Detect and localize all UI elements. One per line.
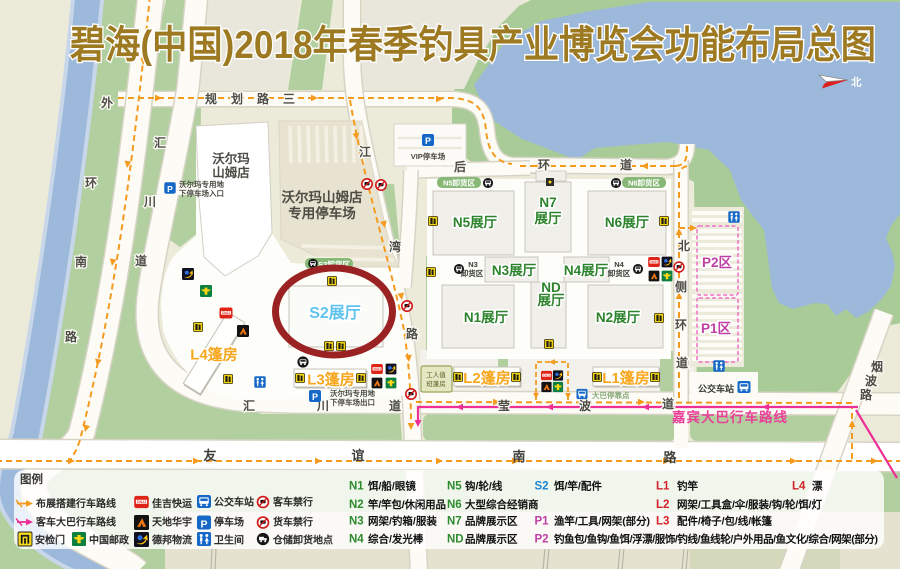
svg-text:嘉宾大巴行车路线: 嘉宾大巴行车路线 [671, 409, 788, 425]
svg-text:N1展厅: N1展厅 [464, 310, 509, 325]
svg-text:划: 划 [231, 91, 243, 106]
svg-text:N6: N6 [447, 499, 462, 511]
svg-text:大巴停靠点: 大巴停靠点 [592, 390, 630, 400]
svg-text:路: 路 [257, 91, 270, 106]
svg-text:碧海(中国)2018年春季钓具产业博览会功能布局总图: 碧海(中国)2018年春季钓具产业博览会功能布局总图 [70, 24, 876, 67]
svg-text:L2篷房: L2篷房 [463, 369, 511, 387]
svg-text:L3篷房: L3篷房 [307, 371, 355, 389]
svg-text:图例: 图例 [20, 472, 43, 486]
svg-text:展厅: 展厅 [538, 293, 566, 308]
svg-text:品牌展示区: 品牌展示区 [465, 515, 518, 528]
svg-text:山姆店: 山姆店 [212, 165, 250, 180]
svg-text:饵/船/眼镜: 饵/船/眼镜 [367, 480, 416, 493]
svg-text:北: 北 [678, 238, 690, 253]
svg-text:综合/发光棒: 综合/发光棒 [368, 533, 424, 546]
svg-text:货车禁行: 货车禁行 [273, 516, 313, 529]
svg-text:公交车站: 公交车站 [214, 496, 254, 509]
svg-text:湾: 湾 [389, 239, 401, 254]
svg-text:安检门: 安检门 [35, 534, 65, 547]
svg-text:N4展厅: N4展厅 [564, 263, 609, 278]
svg-text:友: 友 [203, 448, 216, 463]
svg-text:南: 南 [512, 449, 525, 464]
svg-text:饵/竿/配件: 饵/竿/配件 [553, 480, 602, 493]
svg-text:道: 道 [676, 355, 688, 370]
svg-text:专用停车场: 专用停车场 [288, 205, 356, 221]
svg-text:路: 路 [65, 329, 78, 344]
svg-text:江: 江 [359, 144, 371, 159]
svg-text:钩/轮/线: 钩/轮/线 [465, 480, 503, 493]
svg-text:N4: N4 [614, 260, 624, 269]
svg-text:路: 路 [406, 326, 419, 341]
svg-text:N3: N3 [349, 516, 364, 528]
svg-text:L1: L1 [656, 481, 670, 493]
svg-text:沃尔玛山姆店: 沃尔玛山姆店 [282, 189, 363, 205]
svg-text:N5展厅: N5展厅 [453, 215, 498, 230]
svg-text:北: 北 [851, 76, 862, 89]
svg-text:N3: N3 [468, 260, 478, 269]
svg-text:网架/钓箱/服装: 网架/钓箱/服装 [368, 515, 437, 528]
svg-text:展厅: 展厅 [535, 211, 563, 226]
svg-text:P2区: P2区 [702, 255, 733, 270]
svg-text:下停车场出口: 下停车场出口 [330, 397, 375, 407]
svg-text:川: 川 [143, 195, 156, 209]
svg-text:佳吉快运: 佳吉快运 [152, 497, 192, 510]
svg-text:谊: 谊 [351, 448, 364, 463]
svg-text:N6卸货区: N6卸货区 [628, 178, 661, 188]
svg-text:波: 波 [865, 373, 878, 388]
svg-text:L4篷房: L4篷房 [190, 346, 238, 364]
svg-text:道: 道 [389, 398, 401, 413]
svg-text:客车禁行: 客车禁行 [272, 496, 313, 509]
svg-text:漂: 漂 [812, 480, 823, 493]
svg-text:N5卸货区: N5卸货区 [443, 178, 476, 188]
svg-text:N6展厅: N6展厅 [605, 215, 650, 230]
svg-text:汇: 汇 [154, 136, 166, 150]
svg-text:环: 环 [85, 176, 97, 190]
svg-text:道: 道 [135, 253, 147, 268]
svg-text:班蓬房: 班蓬房 [426, 379, 446, 388]
svg-text:钓竿: 钓竿 [677, 480, 698, 493]
svg-text:停车场: 停车场 [214, 516, 244, 529]
svg-text:钓鱼包/鱼钩/鱼饵/浮漂/服饰/钓线/鱼线轮/户外用品/鱼文: 钓鱼包/鱼钩/鱼饵/浮漂/服饰/钓线/鱼线轮/户外用品/鱼文化/综合/网架(部分… [554, 533, 878, 546]
svg-text:大型综合经销商: 大型综合经销商 [465, 498, 539, 511]
svg-text:L3: L3 [656, 516, 669, 528]
svg-text:网架/工具盒/伞/服装/钩/轮/饵/灯: 网架/工具盒/伞/服装/钩/轮/饵/灯 [677, 498, 823, 511]
svg-text:卫生间: 卫生间 [214, 534, 244, 547]
svg-text:L2: L2 [656, 499, 669, 511]
svg-text:N3展厅: N3展厅 [492, 263, 537, 278]
svg-text:卸货区: 卸货区 [608, 268, 631, 278]
svg-text:卸货区: 卸货区 [461, 268, 484, 278]
svg-text:天地华宇: 天地华宇 [152, 516, 192, 529]
svg-text:N7: N7 [539, 195, 556, 210]
svg-text:ND: ND [447, 534, 464, 546]
svg-text:S2展厅: S2展厅 [309, 304, 361, 322]
svg-text:后: 后 [454, 159, 466, 174]
svg-text:N4: N4 [349, 534, 364, 546]
svg-text:汇: 汇 [243, 399, 255, 413]
svg-text:L4: L4 [792, 481, 806, 493]
svg-text:P2: P2 [535, 534, 549, 546]
svg-text:下停车场入口: 下停车场入口 [179, 188, 224, 198]
svg-text:配件/椅子/包/线/帐篷: 配件/椅子/包/线/帐篷 [677, 515, 773, 528]
svg-text:品牌展示区: 品牌展示区 [465, 533, 518, 546]
svg-text:P1区: P1区 [701, 321, 732, 336]
svg-text:烟: 烟 [871, 360, 883, 374]
svg-text:工人值: 工人值 [426, 370, 446, 379]
svg-text:L1篷房: L1篷房 [602, 369, 650, 387]
svg-text:环: 环 [538, 158, 550, 172]
svg-text:波: 波 [579, 398, 592, 413]
svg-text:仓储卸货地点: 仓储卸货地点 [272, 534, 333, 547]
svg-text:中国邮政: 中国邮政 [89, 534, 130, 547]
svg-text:VIP停车场: VIP停车场 [411, 151, 446, 161]
svg-text:渔竿/工具/网架(部分): 渔竿/工具/网架(部分) [554, 515, 650, 528]
svg-text:N7: N7 [447, 516, 462, 528]
svg-text:沃尔玛专用地: 沃尔玛专用地 [330, 388, 375, 398]
svg-text:沃尔玛: 沃尔玛 [212, 151, 250, 166]
svg-text:莹: 莹 [498, 398, 510, 413]
svg-text:南: 南 [75, 254, 87, 269]
svg-text:竿/竿包/休闲用品: 竿/竿包/休闲用品 [368, 498, 446, 511]
svg-text:客车大巴行车路线: 客车大巴行车路线 [35, 516, 116, 529]
svg-text:N1: N1 [349, 481, 364, 493]
svg-text:P1: P1 [535, 516, 550, 528]
svg-text:侧: 侧 [675, 279, 687, 294]
svg-text:N2展厅: N2展厅 [596, 310, 641, 325]
svg-text:沃尔玛专用地: 沃尔玛专用地 [179, 179, 224, 189]
svg-text:道: 道 [662, 396, 674, 411]
svg-text:N5: N5 [447, 481, 462, 493]
svg-text:三: 三 [283, 92, 295, 106]
svg-text:路: 路 [663, 450, 677, 465]
svg-text:环: 环 [675, 318, 687, 332]
svg-text:外: 外 [101, 95, 113, 110]
svg-text:S2: S2 [535, 481, 549, 493]
svg-text:道: 道 [620, 157, 632, 172]
svg-text:公交车站: 公交车站 [698, 383, 734, 394]
svg-text:布展搭建行车路线: 布展搭建行车路线 [36, 497, 116, 510]
svg-text:路: 路 [860, 387, 873, 402]
svg-text:规: 规 [205, 91, 217, 106]
svg-text:N2: N2 [349, 499, 364, 511]
svg-text:德邦物流: 德邦物流 [151, 534, 192, 547]
